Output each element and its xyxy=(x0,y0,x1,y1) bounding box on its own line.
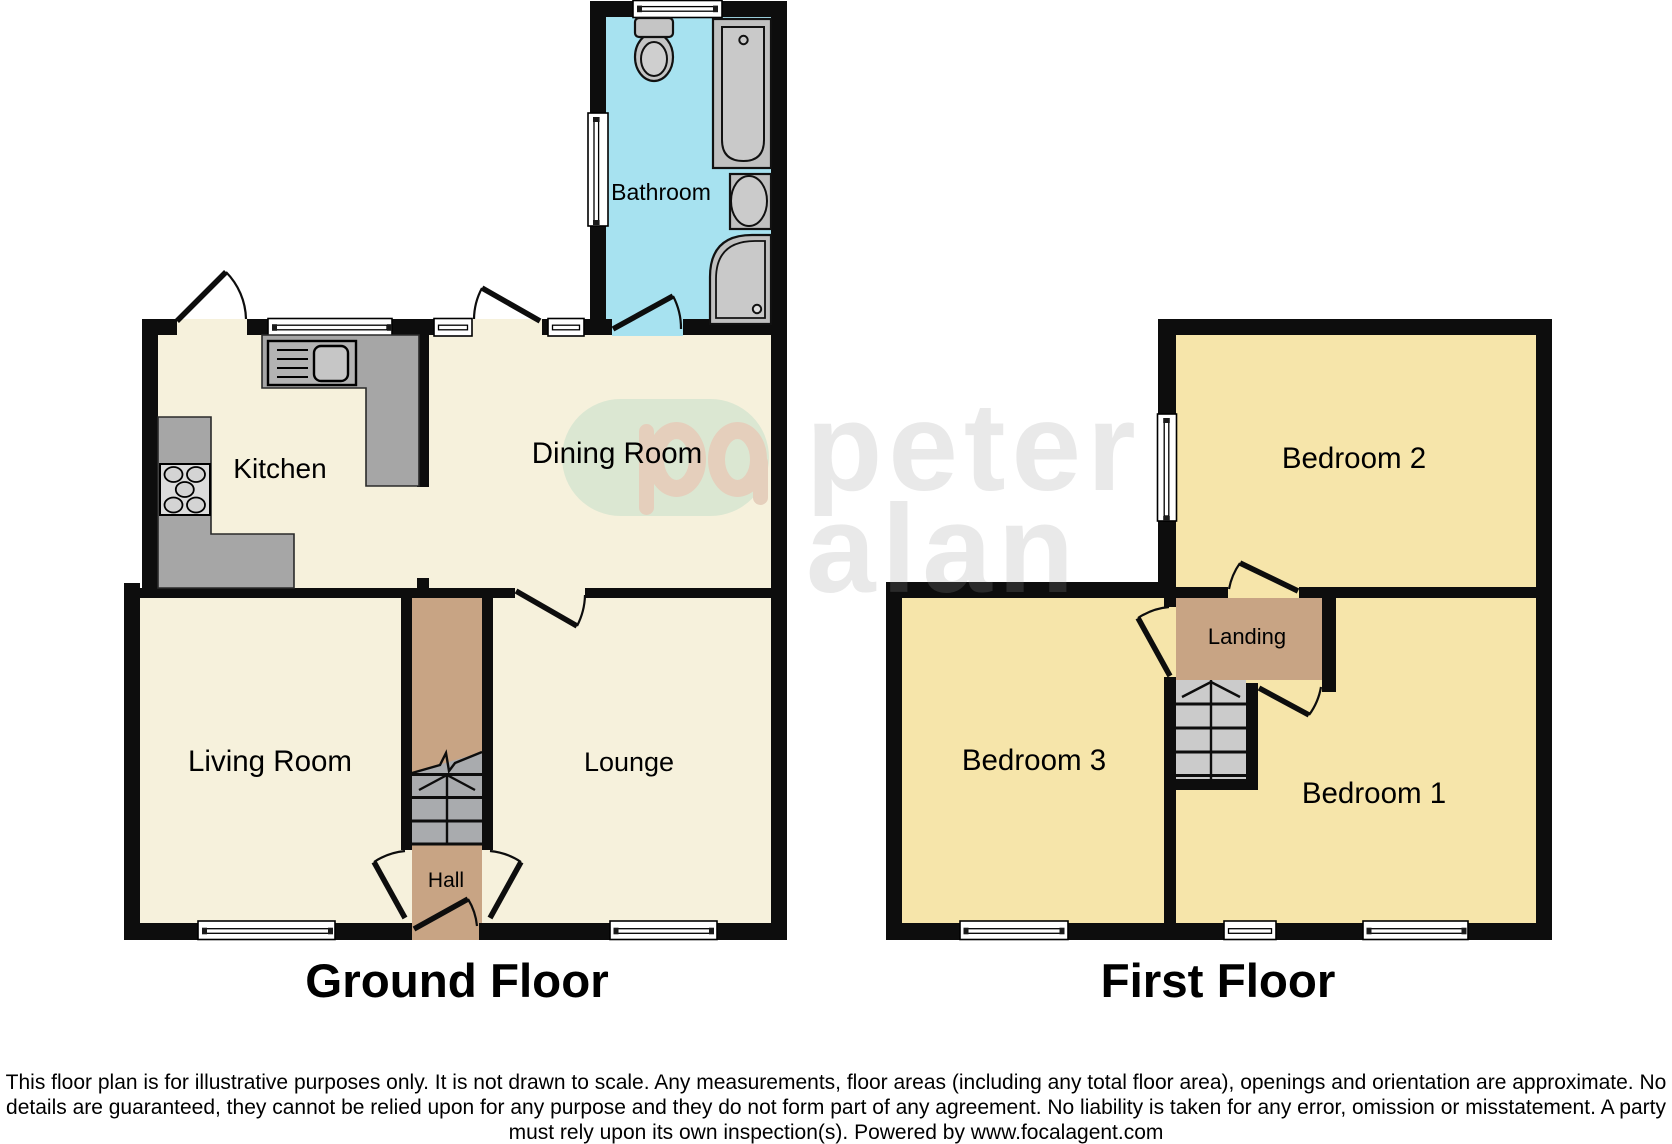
svg-text:Ground Floor: Ground Floor xyxy=(305,955,608,1008)
svg-text:Landing: Landing xyxy=(1208,624,1286,649)
svg-text:alan: alan xyxy=(806,480,1080,619)
svg-text:must rely upon its own inspect: must rely upon its own inspection(s). Po… xyxy=(509,1121,1164,1144)
svg-text:Dining Room: Dining Room xyxy=(532,437,703,470)
svg-text:Bedroom 1: Bedroom 1 xyxy=(1302,777,1446,810)
svg-text:Bedroom 3: Bedroom 3 xyxy=(962,744,1106,777)
svg-text:details are guaranteed, they c: details are guaranteed, they cannot be r… xyxy=(6,1096,1666,1119)
svg-text:Kitchen: Kitchen xyxy=(233,453,326,484)
svg-text:First Floor: First Floor xyxy=(1101,955,1336,1008)
svg-text:Lounge: Lounge xyxy=(584,747,674,777)
svg-text:This floor plan is for illustr: This floor plan is for illustrative purp… xyxy=(6,1071,1667,1094)
svg-text:Bedroom 2: Bedroom 2 xyxy=(1282,442,1426,475)
svg-text:Living Room: Living Room xyxy=(188,745,352,778)
svg-text:Hall: Hall xyxy=(428,869,464,892)
svg-text:Bathroom: Bathroom xyxy=(611,179,711,205)
